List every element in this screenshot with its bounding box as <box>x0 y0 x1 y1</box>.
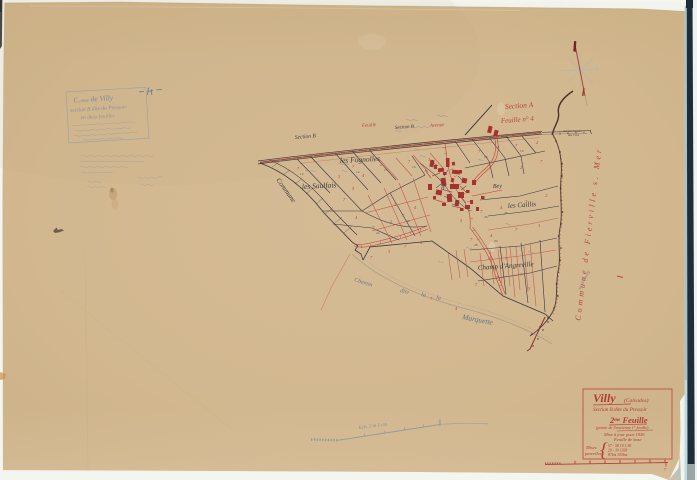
svg-text:15: 15 <box>384 168 388 172</box>
svg-text:87bis 105bis: 87bis 105bis <box>608 453 628 457</box>
svg-text:27: 27 <box>504 211 508 215</box>
svg-text:des Cres: des Cres <box>568 133 580 137</box>
svg-text:(partie de l'ancienne 1° feuil: (partie de l'ancienne 1° feuille) <box>596 425 649 430</box>
svg-text:(Calvados): (Calvados) <box>624 397 649 404</box>
svg-text:22: 22 <box>376 231 380 235</box>
svg-text:Mises: Mises <box>585 445 597 450</box>
svg-text:19: 19 <box>520 149 524 153</box>
svg-text:18: 18 <box>484 155 488 159</box>
svg-text:les Saulfais: les Saulfais <box>302 180 337 191</box>
svg-text:Villy: Villy <box>593 391 616 405</box>
svg-text:24: 24 <box>406 219 410 223</box>
svg-text:d: d <box>441 184 445 192</box>
svg-text:16: 16 <box>412 165 416 169</box>
svg-text:7: 7 <box>664 467 666 472</box>
svg-text:28: 28 <box>474 243 478 247</box>
svg-text:29 - 30 1938: 29 - 30 1938 <box>608 449 627 453</box>
svg-text:Section B dite du Pressoir: Section B dite du Pressoir <box>593 407 648 413</box>
svg-text:29: 29 <box>494 239 498 243</box>
svg-text:Feuille de base: Feuille de base <box>613 437 642 442</box>
svg-text:{: { <box>600 440 608 461</box>
svg-text:26: 26 <box>484 215 488 219</box>
svg-text:Bey: Bey <box>493 184 503 190</box>
svg-text:parcelles: parcelles <box>584 451 602 456</box>
svg-text:57 - 58 19.1.38: 57 - 58 19.1.38 <box>608 444 631 448</box>
svg-text:14: 14 <box>356 170 360 174</box>
svg-text:12: 12 <box>300 172 304 176</box>
